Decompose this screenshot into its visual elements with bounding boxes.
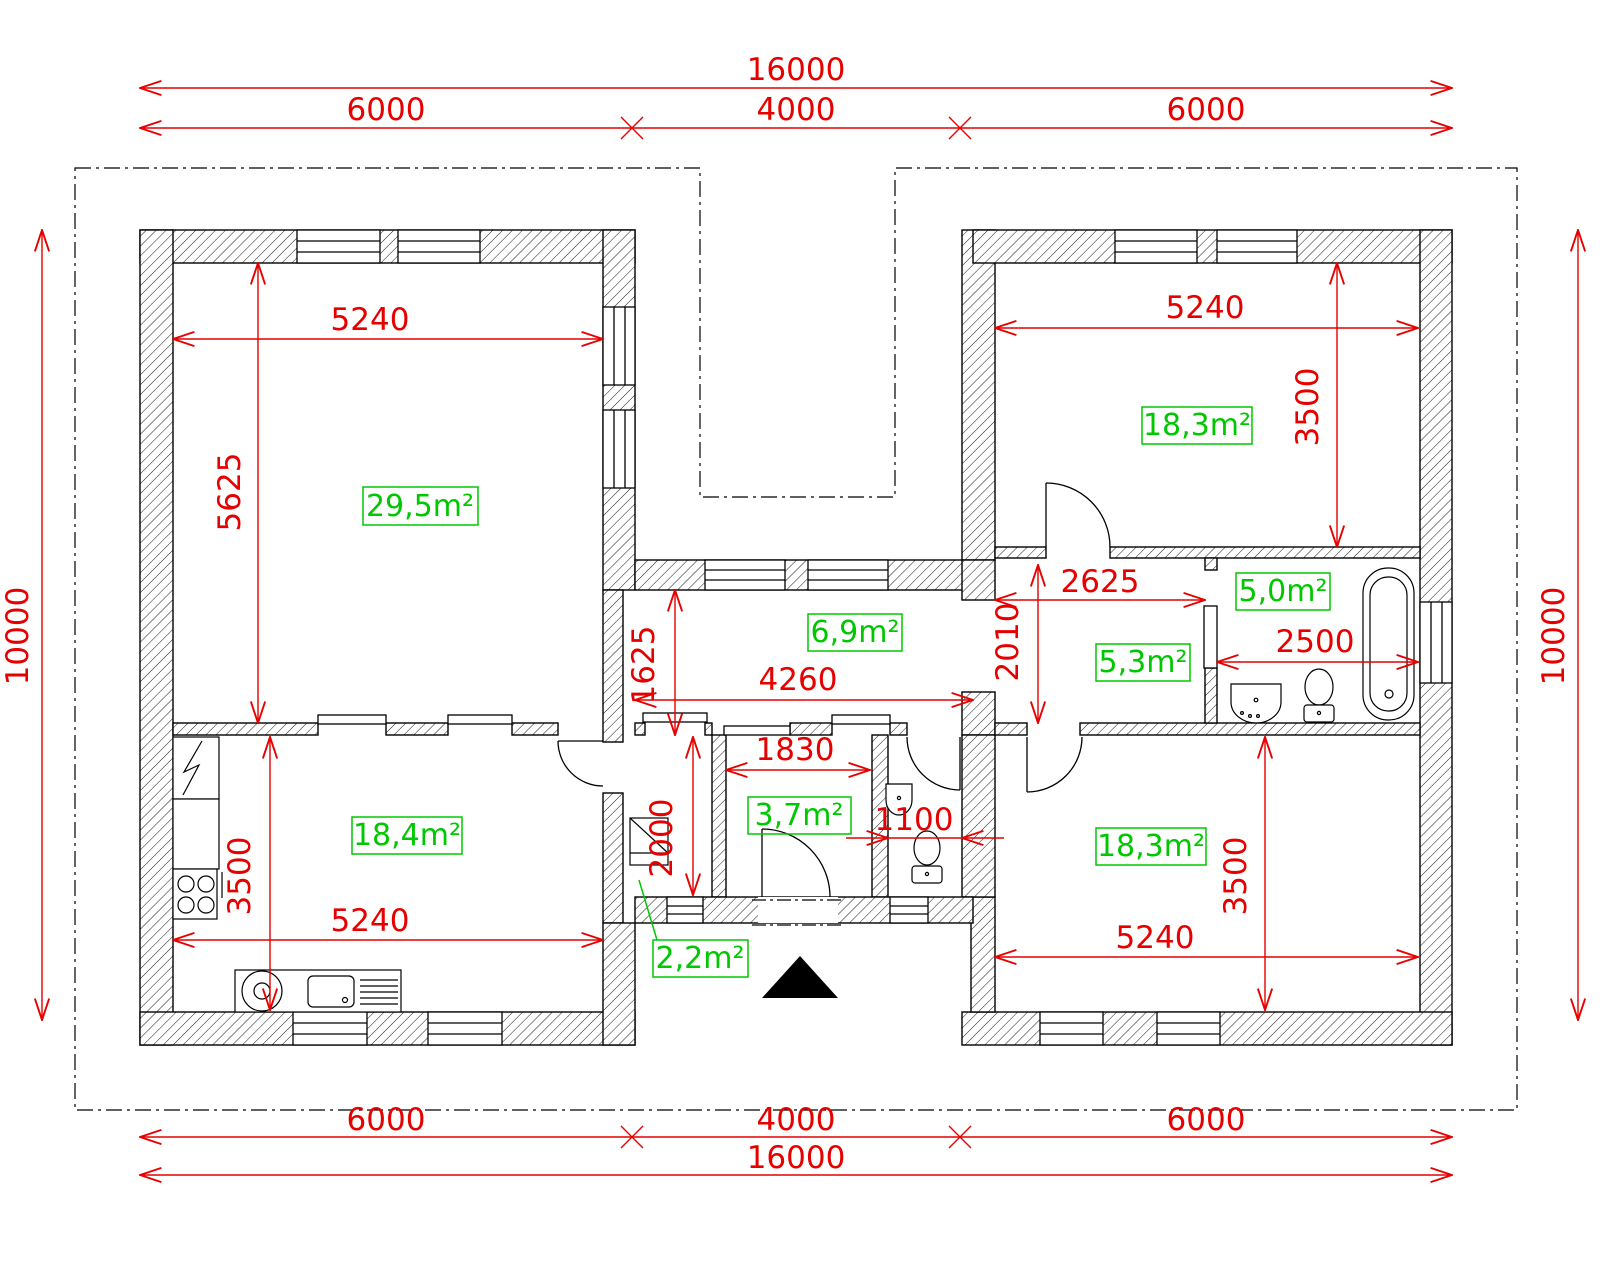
- dim-closet-h: 2000: [644, 799, 680, 878]
- window-living-north-1: [297, 230, 380, 263]
- window-bathroom-east: [1420, 602, 1452, 683]
- kitchen-cabinet: [173, 799, 219, 869]
- fixtures: [173, 568, 1414, 1012]
- door-wc: [907, 737, 960, 790]
- window-bedroom-ne-2: [1217, 230, 1297, 263]
- front-door-gap: [758, 897, 838, 923]
- area-vestibule-text: 3,7m²: [755, 798, 844, 833]
- partition-closet-vestibule: [712, 735, 726, 897]
- wall-porch-west: [603, 923, 635, 1045]
- floor-plan-drawing: 16000 6000 4000 6000 6000 4000 6000 1600…: [0, 0, 1600, 1280]
- window-kitchen-south-1: [293, 1012, 367, 1045]
- dim-bath-w: 2500: [1276, 624, 1355, 660]
- window-wc-south: [890, 897, 928, 923]
- door-panel-living-kitchen-2: [448, 715, 512, 724]
- wall-west-right-wing-seg2: [962, 692, 995, 735]
- window-living-north-2: [398, 230, 480, 263]
- dim-height-left: 10000: [0, 587, 36, 686]
- window-bedroom-se-1: [1040, 1012, 1103, 1045]
- row-wall-g: [890, 723, 907, 735]
- door-front-entrance: [762, 829, 830, 897]
- dim-bottom-left: 6000: [347, 1102, 426, 1138]
- wall-porch-east: [971, 897, 995, 1012]
- area-kitchen-text: 18,4m²: [353, 818, 461, 853]
- dim-bottom-right: 6000: [1167, 1102, 1246, 1138]
- partition-bath-hall-jamb: [1205, 558, 1217, 570]
- dim-vestibule-w: 1830: [756, 732, 835, 768]
- area-bedroom-ne-text: 18,3m²: [1143, 408, 1251, 443]
- wall-east-left-wing-low: [603, 793, 623, 923]
- area-label-bedroom-ne: 18,3m²: [1142, 407, 1252, 444]
- bath-sink: [1231, 684, 1281, 723]
- wc-toilet: [912, 831, 942, 883]
- wall-west-right-wing-courtyard: [962, 230, 995, 560]
- fridge: [173, 737, 219, 799]
- washing-machine: [242, 971, 282, 1011]
- area-living-text: 29,5m²: [366, 489, 474, 524]
- dim-total-width-bottom: 16000: [747, 1140, 846, 1176]
- dim-kitchen-w: 5240: [331, 903, 410, 939]
- area-label-bathroom: 5,0m²: [1236, 573, 1330, 610]
- row-wall-d: [635, 723, 645, 735]
- dim-living-h: 5625: [212, 453, 248, 532]
- wall-south-left-wing: [140, 1012, 635, 1045]
- dim-living-w: 5240: [331, 302, 410, 338]
- wall-wc-east: [962, 735, 995, 897]
- dim-bedroom-se-w: 5240: [1116, 920, 1195, 956]
- dim-kitchen-h: 3500: [222, 837, 258, 916]
- window-bedroom-ne-1: [1115, 230, 1197, 263]
- entrance-marker: [762, 956, 838, 998]
- doors: [318, 483, 1217, 923]
- dim-top-left: 6000: [347, 92, 426, 128]
- window-living-east-1: [603, 307, 635, 385]
- window-bedroom-se-2: [1157, 1012, 1220, 1045]
- area-labels: 29,5m² 18,3m² 6,9m² 5,0m² 5,3m² 18,4m² 3…: [352, 407, 1330, 977]
- area-label-vestibule: 3,7m²: [748, 797, 851, 834]
- dim-top-right: 6000: [1167, 92, 1246, 128]
- door-panel-hall-side: [832, 715, 890, 724]
- area-label-bedroom-se: 18,3m²: [1096, 828, 1206, 865]
- dim-bottom-center: 4000: [757, 1102, 836, 1138]
- wall-north-right-wing: [973, 230, 1452, 263]
- door-bedroom-ne: [1046, 483, 1110, 547]
- door-panel-living-kitchen-1: [318, 715, 386, 724]
- window-hallway-2: [808, 560, 888, 590]
- stove: [173, 869, 222, 919]
- window-hallway-1: [705, 560, 785, 590]
- row-wall-i: [1080, 723, 1420, 735]
- dim-height-right: 10000: [1536, 587, 1572, 686]
- area-bathroom-text: 5,0m²: [1239, 574, 1328, 609]
- dim-hallway-h: 1625: [626, 626, 662, 705]
- area-label-living: 29,5m²: [363, 487, 478, 525]
- bathtub: [1363, 568, 1414, 720]
- dim-inner-hall-w: 2625: [1061, 564, 1140, 600]
- area-inner-hall-text: 5,3m²: [1099, 645, 1188, 680]
- area-closet-text: 2,2m²: [656, 941, 745, 976]
- dim-wc-w: 1100: [875, 802, 954, 838]
- dim-bedroom-se-h: 3500: [1218, 837, 1254, 916]
- row-wall-a: [173, 723, 318, 735]
- bath-toilet: [1304, 669, 1334, 722]
- dim-bedroom-ne-h: 3500: [1290, 368, 1326, 447]
- wall-north-left-wing: [140, 230, 635, 263]
- dim-top-center: 4000: [757, 92, 836, 128]
- area-label-kitchen: 18,4m²: [352, 817, 462, 854]
- window-closet-south: [667, 897, 703, 923]
- area-label-hallway: 6,9m²: [808, 614, 902, 651]
- area-label-inner-hall: 5,3m²: [1096, 644, 1190, 681]
- area-bedroom-se-text: 18,3m²: [1097, 829, 1205, 864]
- door-living-kitchen: [558, 741, 603, 786]
- row-wall-h: [995, 723, 1027, 735]
- row-wall-c: [512, 723, 558, 735]
- dim-bedroom-ne-w: 5240: [1166, 290, 1245, 326]
- row-wall-b: [386, 723, 448, 735]
- wall-bedroom-ne-south-b: [1110, 547, 1420, 558]
- row-wall-e: [705, 723, 712, 735]
- wall-west: [140, 230, 173, 1045]
- partition-bath-hall-low: [1205, 668, 1217, 723]
- wall-bedroom-ne-south-a: [995, 547, 1046, 558]
- dim-total-width-top: 16000: [747, 52, 846, 88]
- wall-hallway-north: [635, 560, 973, 590]
- wall-east-left-wing-mid: [603, 590, 623, 742]
- dim-inner-hall-h: 2010: [990, 603, 1026, 682]
- door-panel-bathroom: [1204, 606, 1217, 668]
- area-hallway-text: 6,9m²: [811, 615, 900, 650]
- window-living-east-2: [603, 410, 635, 488]
- dim-hallway-w: 4260: [759, 662, 838, 698]
- window-kitchen-south-2: [428, 1012, 502, 1045]
- floor-plan-page: 16000 6000 4000 6000 6000 4000 6000 1600…: [0, 0, 1600, 1280]
- wall-west-right-wing-seg1: [962, 560, 995, 600]
- door-bedroom-se: [1027, 737, 1082, 792]
